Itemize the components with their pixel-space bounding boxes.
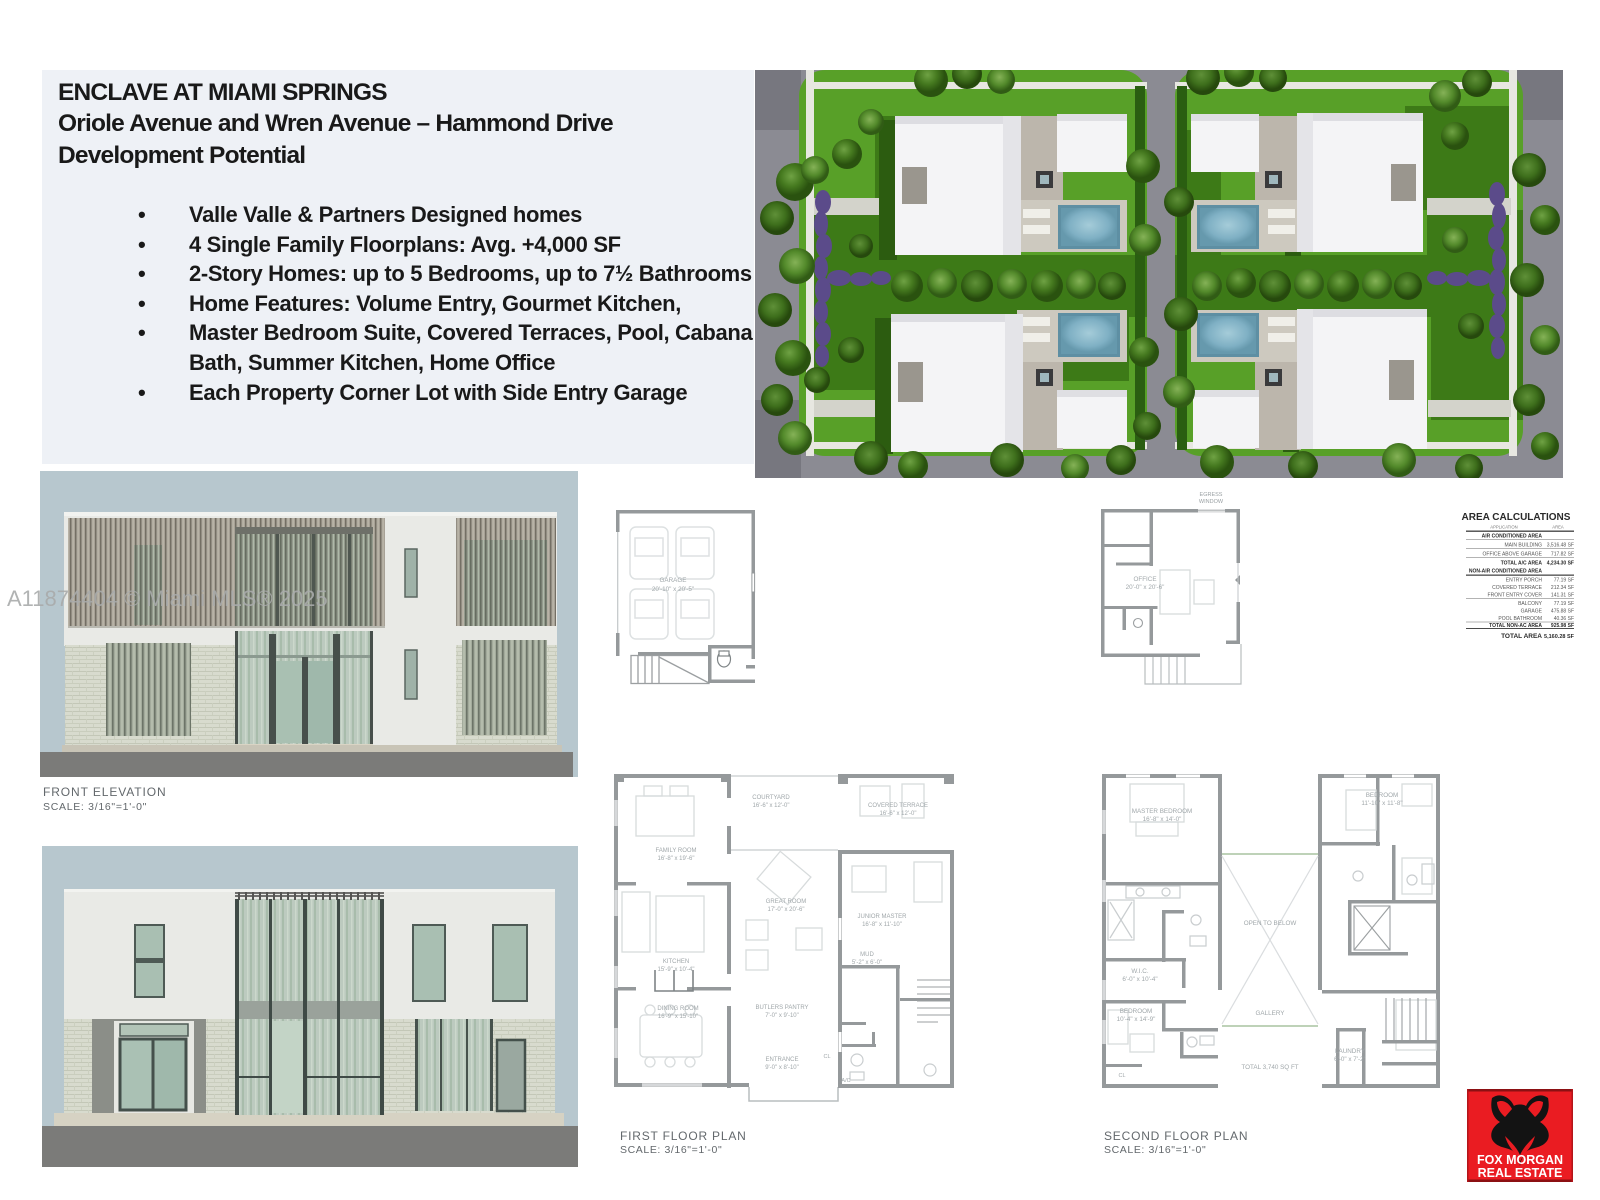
svg-text:KITCHEN: KITCHEN — [663, 959, 689, 965]
svg-text:GARAGE: GARAGE — [660, 577, 687, 584]
svg-text:A/C: A/C — [841, 1078, 850, 1084]
svg-text:GARAGE: GARAGE — [1521, 609, 1543, 615]
svg-text:BEDROOM: BEDROOM — [1366, 792, 1399, 799]
svg-text:FRONT ENTRY COVER: FRONT ENTRY COVER — [1488, 593, 1543, 599]
svg-text:MAIN BUILDING: MAIN BUILDING — [1504, 543, 1542, 549]
svg-text:FOX MORGAN: FOX MORGAN — [1477, 1153, 1563, 1167]
svg-text:16'-6" x 12'-0": 16'-6" x 12'-0" — [753, 803, 790, 809]
svg-text:POOL BATHROOM: POOL BATHROOM — [1498, 616, 1542, 622]
svg-text:MUD: MUD — [860, 952, 874, 958]
svg-text:MASTER BEDROOM: MASTER BEDROOM — [1132, 808, 1193, 815]
svg-text:4,234.30 SF: 4,234.30 SF — [1547, 561, 1574, 567]
svg-text:TOTAL 3,740 SQ FT: TOTAL 3,740 SQ FT — [1241, 1064, 1298, 1071]
svg-text:20'-10" x 20'-5": 20'-10" x 20'-5" — [652, 586, 694, 593]
svg-text:GREAT ROOM: GREAT ROOM — [766, 899, 806, 905]
svg-text:9'-0" x 8'-10": 9'-0" x 8'-10" — [765, 1065, 799, 1071]
svg-text:16'-8" x 14'-0": 16'-8" x 14'-0" — [1143, 816, 1182, 823]
svg-text:COVERED TERRACE: COVERED TERRACE — [1492, 585, 1543, 591]
svg-text:AREA: AREA — [1552, 525, 1564, 530]
svg-text:TOTAL A/C AREA: TOTAL A/C AREA — [1501, 561, 1543, 567]
svg-text:COVERED TERRACE: COVERED TERRACE — [868, 803, 928, 809]
svg-text:BUTLERS PANTRY: BUTLERS PANTRY — [755, 1005, 808, 1011]
svg-text:16'-6" x 12'-0": 16'-6" x 12'-0" — [880, 811, 917, 817]
svg-text:REAL ESTATE: REAL ESTATE — [1478, 1166, 1563, 1180]
svg-text:6'-0" x 10'-4": 6'-0" x 10'-4" — [1122, 976, 1157, 983]
svg-text:APPLICATION: APPLICATION — [1490, 525, 1517, 530]
svg-text:5,160.28 SF: 5,160.28 SF — [1544, 634, 1575, 640]
svg-text:NON-AIR CONDITIONED AREA: NON-AIR CONDITIONED AREA — [1469, 569, 1543, 575]
svg-text:TOTAL AREA: TOTAL AREA — [1501, 633, 1542, 640]
svg-text:COURTYARD: COURTYARD — [752, 795, 790, 801]
svg-text:212.34 SF: 212.34 SF — [1551, 585, 1574, 591]
svg-text:20'-0" x 20'-6": 20'-0" x 20'-6" — [1126, 584, 1165, 591]
svg-text:WINDOW: WINDOW — [1199, 499, 1224, 505]
svg-text:FAMILY ROOM: FAMILY ROOM — [655, 848, 696, 854]
svg-text:17'-0" x 20'-6": 17'-0" x 20'-6" — [768, 907, 805, 913]
svg-text:BEDROOM: BEDROOM — [1120, 1008, 1153, 1015]
svg-text:475.88 SF: 475.88 SF — [1551, 609, 1574, 615]
svg-text:CL: CL — [1118, 1073, 1125, 1079]
svg-text:16'-9" x 15'-10": 16'-9" x 15'-10" — [658, 1014, 698, 1020]
svg-text:16'-8" x 19'-6": 16'-8" x 19'-6" — [658, 856, 695, 862]
svg-text:5'-2" x 6'-0": 5'-2" x 6'-0" — [852, 960, 882, 966]
svg-text:141.31 SF: 141.31 SF — [1551, 593, 1574, 599]
svg-text:EGRESS: EGRESS — [1200, 492, 1223, 498]
svg-text:LAUNDRY: LAUNDRY — [1335, 1048, 1366, 1055]
svg-text:OFFICE: OFFICE — [1133, 576, 1156, 583]
svg-text:77.19 SF: 77.19 SF — [1554, 578, 1574, 584]
svg-text:10'-4" x 14'-9": 10'-4" x 14'-9" — [1117, 1016, 1156, 1023]
svg-text:ENTRY PORCH: ENTRY PORCH — [1506, 578, 1543, 584]
svg-text:ENTRANCE: ENTRANCE — [765, 1057, 798, 1063]
svg-text:717.82 SF: 717.82 SF — [1551, 552, 1574, 558]
svg-text:OPEN TO BELOW: OPEN TO BELOW — [1244, 920, 1297, 927]
svg-text:BALCONY: BALCONY — [1518, 601, 1543, 607]
svg-text:7'-0" x 9'-10": 7'-0" x 9'-10" — [765, 1013, 799, 1019]
svg-text:6'-0" x 7'-2": 6'-0" x 7'-2" — [1334, 1056, 1366, 1063]
svg-text:DINING ROOM: DINING ROOM — [657, 1006, 698, 1012]
svg-text:GALLERY: GALLERY — [1256, 1010, 1286, 1017]
svg-text:11'-10" x 11'-8": 11'-10" x 11'-8" — [1361, 800, 1402, 807]
svg-text:CL: CL — [823, 1054, 830, 1060]
svg-text:JUNIOR MASTER: JUNIOR MASTER — [857, 914, 907, 920]
svg-text:W.I.C.: W.I.C. — [1131, 968, 1148, 975]
svg-text:16'-8" x 11'-10": 16'-8" x 11'-10" — [862, 922, 902, 928]
svg-text:AIR CONDITIONED AREA: AIR CONDITIONED AREA — [1482, 534, 1543, 540]
svg-text:40.36 SF: 40.36 SF — [1554, 616, 1574, 622]
svg-text:77.19 SF: 77.19 SF — [1554, 601, 1574, 607]
svg-text:3,516.48 SF: 3,516.48 SF — [1547, 543, 1574, 549]
svg-text:OFFICE ABOVE GARAGE: OFFICE ABOVE GARAGE — [1483, 552, 1543, 558]
svg-text:15'-9" x 10'-4": 15'-9" x 10'-4" — [658, 967, 695, 973]
svg-text:AREA CALCULATIONS: AREA CALCULATIONS — [1462, 512, 1571, 523]
